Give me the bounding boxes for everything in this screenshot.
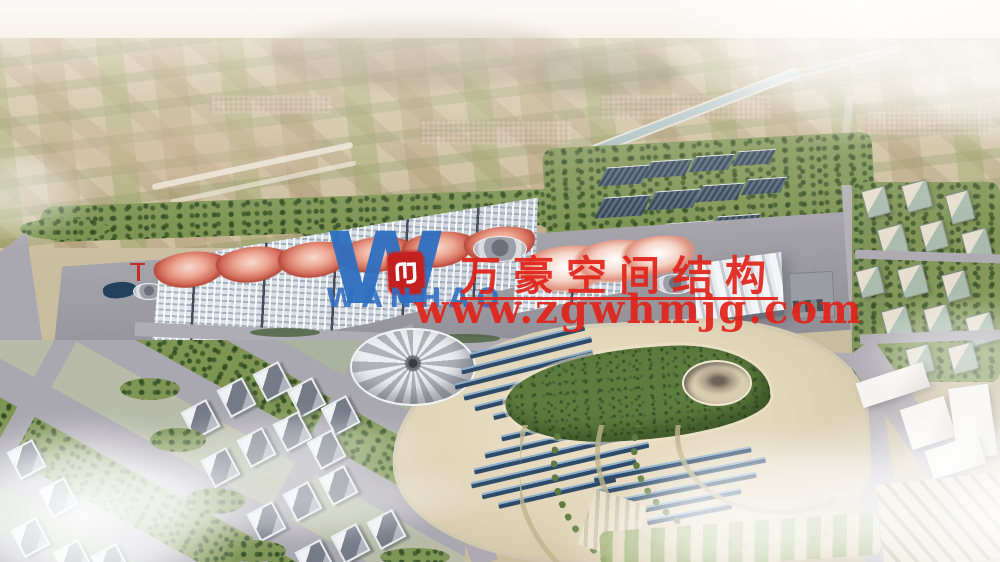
watermark: W WANHAO 万豪空间结构 www.zgwhmjg.com [0,0,1000,562]
watermark-website-url: www.zgwhmjg.com [414,286,863,333]
aerial-architectural-rendering: W WANHAO 万豪空间结构 www.zgwhmjg.com [0,0,1000,562]
